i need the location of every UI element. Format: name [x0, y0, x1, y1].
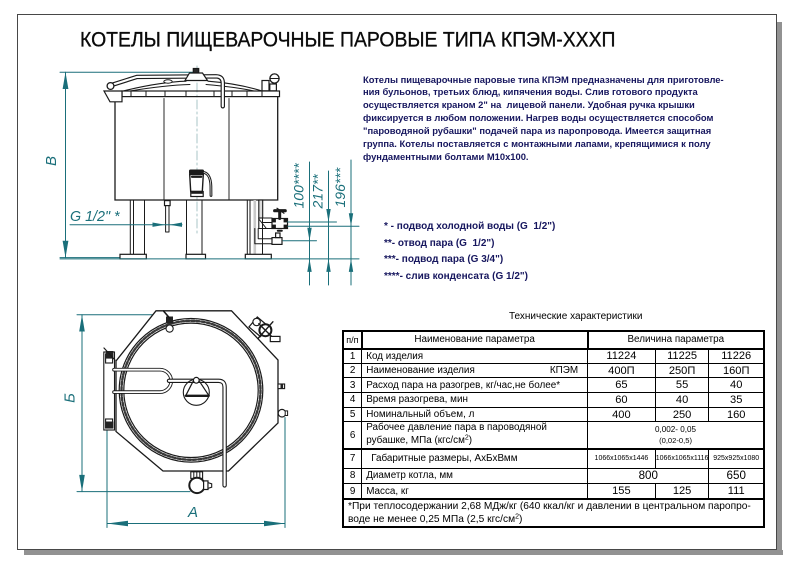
svg-text:217**: 217**: [310, 174, 326, 210]
svg-text:G 1/2" *: G 1/2" *: [70, 209, 120, 225]
svg-text:196***: 196***: [332, 167, 348, 207]
svg-text:А: А: [187, 504, 198, 521]
svg-text:В: В: [43, 156, 60, 166]
svg-text:Б: Б: [62, 393, 79, 403]
svg-text:100****: 100****: [291, 163, 307, 209]
